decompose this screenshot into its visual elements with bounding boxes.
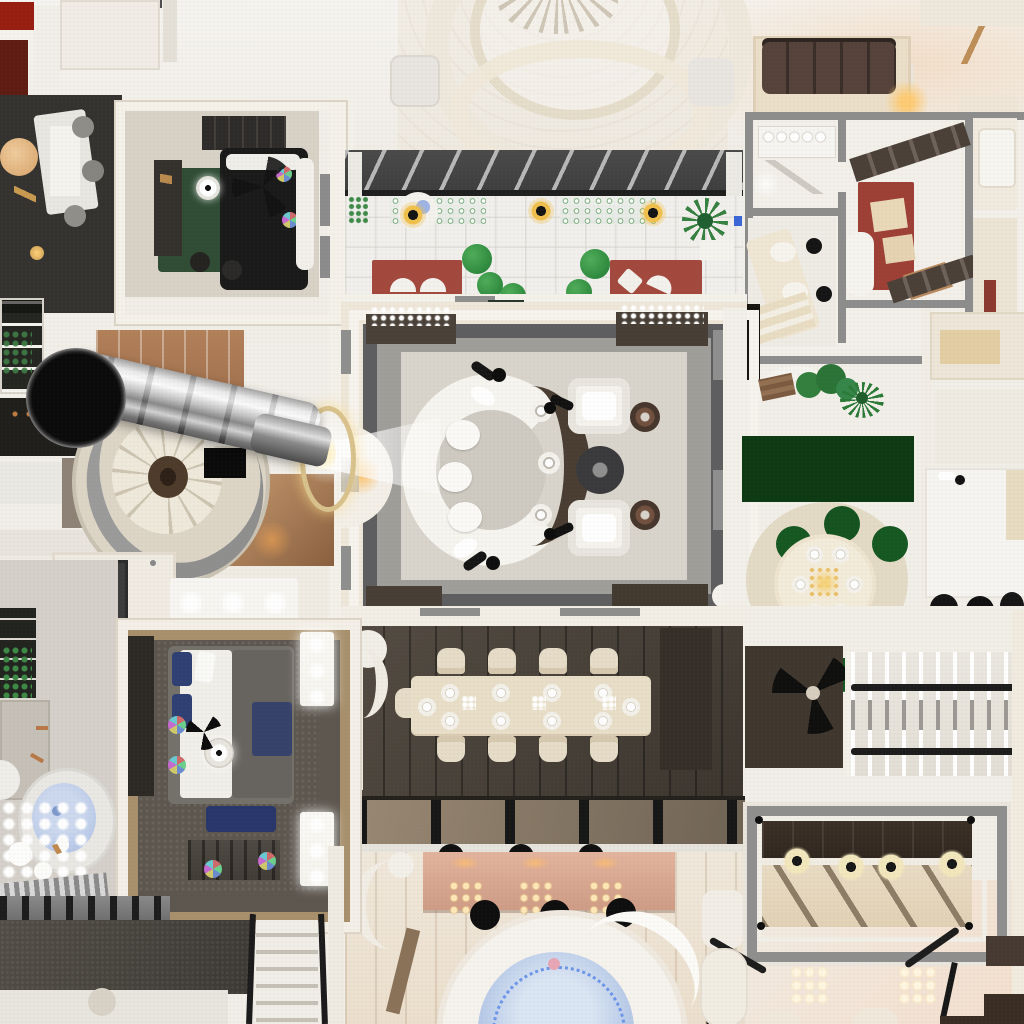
atrium-corner-dot-1 (755, 816, 763, 824)
spa-copper-accent-1 (36, 726, 48, 730)
terrace-planter-right (700, 240, 734, 260)
left-stool-2 (82, 160, 104, 182)
column-capital-1 (390, 55, 440, 107)
dining-chair-top-4 (590, 648, 618, 674)
closet-glow (752, 170, 780, 198)
dining-flowers-1 (462, 696, 476, 710)
left-stool-1 (72, 116, 94, 138)
spiral-center-dot (160, 468, 176, 486)
sofa-pouf-1 (446, 420, 480, 450)
gold-floor-lamp (30, 246, 44, 260)
dining-chair-bottom-1 (437, 736, 465, 762)
living-graycap-left-1 (341, 330, 351, 374)
wall-graycap-2 (320, 236, 330, 278)
vanity-lamp-1 (806, 238, 822, 254)
plant-on-counter-center (856, 392, 868, 404)
pendant-lamp-1 (400, 202, 426, 228)
small-table-bl (88, 988, 116, 1016)
kitchen-mat-1 (940, 330, 1000, 364)
desk-chair-black (186, 714, 222, 750)
console-tray-2 (538, 452, 560, 474)
bedroom-media-wall (128, 636, 154, 796)
atrium-globe-3 (876, 852, 906, 882)
column-capital-2 (688, 58, 734, 106)
suite-door-notch (838, 162, 846, 192)
disco-ball-6 (258, 852, 276, 870)
dining-chair-top-1 (437, 648, 465, 674)
left-round-table (0, 138, 38, 176)
flower-light-1 (790, 966, 830, 1006)
dining-plate-t2 (492, 684, 510, 702)
atrium-corner-dot-3 (757, 922, 765, 930)
red-cabinet-top-left-1 (0, 2, 34, 30)
closet-dots-row (762, 130, 828, 144)
hall-bottom-graycap-1 (420, 608, 480, 616)
stairs-bl-wall (328, 846, 344, 1024)
floorplan-render (0, 0, 1024, 1024)
vanity-lamp-2 (816, 286, 832, 302)
black-window-2 (204, 448, 246, 478)
ladder-rail-band (0, 896, 170, 920)
terrace-blue-dot (734, 216, 742, 226)
terrace-post-right (726, 152, 742, 196)
suite-wall-v2 (965, 118, 973, 344)
music-room-stool-2 (222, 260, 242, 280)
gold-chandelier-dining (808, 566, 842, 600)
side-table-bottom (630, 500, 660, 530)
dark-green-rug (742, 436, 914, 502)
ceiling-fan-music-room (232, 156, 294, 218)
terrace-post-left (348, 152, 362, 196)
brown-panel-1 (986, 936, 1024, 966)
dining-cabinet-right (660, 628, 712, 770)
right-stairs-teeth (851, 700, 1015, 730)
dining-plate-b2 (492, 712, 510, 730)
atrium-globe-4 (936, 848, 968, 880)
pool-armchair-right (702, 890, 744, 948)
hall-ceiling-light-1 (180, 592, 202, 614)
dining-chair-bottom-4 (590, 736, 618, 762)
hall-bottom-graycap-2 (560, 608, 640, 616)
terrace-plant-left (348, 196, 368, 224)
flowers-top-right (620, 304, 704, 324)
kitchen-counter-mid (935, 390, 1024, 464)
gold-violin (160, 166, 172, 192)
white-sofa-piece-br (700, 948, 748, 1024)
dining-plate-t1 (441, 684, 459, 702)
living-graycap-right-2 (713, 470, 723, 530)
beige-block-top-left (60, 0, 160, 70)
sofa-pouf-2 (438, 462, 472, 492)
dining-plate-left-end (418, 698, 436, 716)
side-table-top (630, 402, 660, 432)
living-graycap-right-1 (713, 330, 723, 380)
agave-center (697, 213, 713, 229)
right-stairs-handrail-1 (851, 684, 1015, 691)
brown-bench-bottom (940, 1016, 1024, 1024)
suite-wall-h-left (751, 208, 845, 216)
flower-light-2 (898, 966, 936, 1004)
bar-glow-2 (520, 856, 550, 870)
niche-light-1 (300, 632, 334, 706)
round-table-plate-4 (846, 576, 863, 593)
armchair-top-cushion (582, 392, 616, 420)
dining-flowers-2 (532, 696, 546, 710)
living-graycap-left-2 (341, 546, 351, 590)
console-tray-3 (530, 504, 552, 526)
skylight-band (357, 800, 745, 846)
pool-pink-dot (548, 958, 560, 970)
right-room-bed-mattress (978, 128, 1016, 188)
bed-pillow-navy-1 (172, 652, 192, 686)
sofa-pouf-3 (448, 502, 482, 532)
atrium-corner-dot-4 (965, 922, 973, 930)
disco-ball-3 (168, 716, 186, 734)
bed-throw-navy (252, 702, 292, 756)
gold-harp (14, 176, 36, 210)
red-cabinet-top-left-2 (0, 40, 28, 96)
dining-plate-b3 (543, 712, 561, 730)
music-room-white-sofa (296, 158, 314, 270)
disco-ball-5 (204, 860, 222, 878)
cabinet-top-right-edge (920, 0, 1024, 26)
music-room-wardrobe (202, 116, 286, 150)
round-table-plate-3 (792, 576, 809, 593)
suite-wall-h-mid (838, 300, 974, 308)
hall-ceiling-light-3 (264, 592, 286, 614)
terrazzo-floor-bl (0, 920, 252, 994)
flowers-top-left (370, 306, 452, 326)
topiary-5 (580, 249, 610, 279)
coffee-table-round (576, 446, 624, 494)
ceiling-fan-hub (806, 686, 820, 700)
green-chair-n (824, 506, 860, 542)
music-room-stool-1 (190, 252, 210, 272)
plants-behind-glass (2, 330, 32, 376)
arc-lamp-head-top (492, 368, 506, 382)
bar-glow-3 (590, 856, 620, 870)
white-globe-lamp (196, 176, 220, 200)
swan-lamp-bottom-head (544, 528, 556, 540)
right-stairs-handrail-2 (851, 748, 1015, 755)
dining-chair-top-2 (488, 648, 516, 674)
bubble-large-1 (8, 842, 32, 866)
green-chair-ne (872, 526, 908, 562)
tufted-sofa (762, 42, 896, 94)
swan-lamp-top-head (544, 402, 556, 414)
right-room-2-maroon (984, 280, 996, 314)
topiary-1 (462, 244, 492, 274)
pergola-beams (345, 150, 743, 194)
white-sink-block (0, 462, 62, 504)
dining-chair-bottom-2 (488, 736, 516, 762)
round-table-plate-2 (832, 546, 849, 563)
safe-room-dot (150, 560, 156, 566)
kitchen-highlight (938, 472, 956, 480)
vanity-sink-1 (770, 242, 796, 262)
pool-room-column (388, 852, 414, 878)
cream-chairback-2 (760, 1010, 800, 1024)
hall-ceiling-light-2 (222, 592, 244, 614)
cream-chairback-1 (852, 1008, 898, 1024)
atrium-globe-2 (836, 852, 866, 882)
bar-stool-bottom-1 (470, 900, 500, 930)
dining-chair-bottom-3 (539, 736, 567, 762)
white-console-top-left (34, 6, 60, 92)
kitchen-faucet-dot (955, 475, 965, 485)
hall-bottom-living (341, 606, 747, 626)
dining-plate-right-end (622, 698, 640, 716)
pillar-top-left (163, 0, 177, 62)
dining-chair-top-3 (539, 648, 567, 674)
disco-ball-4 (168, 756, 186, 774)
bath-beige-mat-2 (882, 234, 915, 264)
bath-tub (846, 232, 874, 296)
stairs-bottom-left (256, 920, 318, 1024)
kitchen-board-right (1006, 470, 1024, 540)
dining-plate-b1 (441, 712, 459, 730)
armchair-bottom-cushion (582, 514, 616, 542)
suite-wall-v1 (838, 118, 846, 343)
atrium-globe-1 (782, 846, 812, 876)
brass-clothes-rack (930, 22, 1020, 64)
wall-graycap-1 (320, 174, 330, 226)
dining-plate-b4 (594, 712, 612, 730)
bath-beige-mat-1 (870, 198, 908, 232)
spa-plants (2, 646, 32, 698)
bar-glow-1 (450, 856, 480, 870)
left-lounge-console (50, 126, 80, 196)
pendant-lamp-2 (528, 198, 554, 224)
bubble-large-2 (34, 862, 52, 880)
pendant-lamp-3 (640, 200, 666, 226)
arc-lamp-head-bottom (486, 556, 500, 570)
dining-flowers-3 (602, 696, 616, 710)
atrium-corner-dot-2 (967, 816, 975, 824)
left-stool-3 (64, 205, 86, 227)
telescope-lens (26, 348, 126, 448)
bed-bench-navy (206, 806, 276, 832)
round-table-plate-1 (806, 546, 823, 563)
